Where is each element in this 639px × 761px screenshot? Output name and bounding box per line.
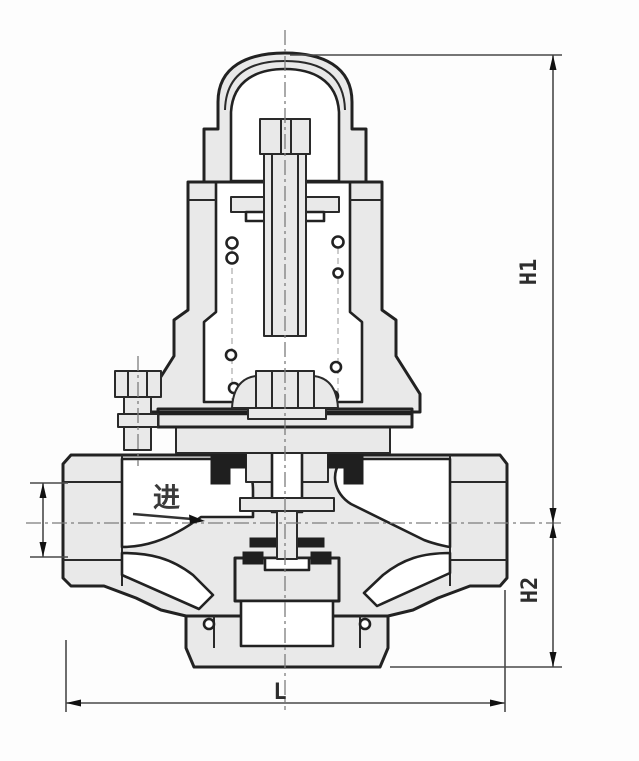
h1-arrow-top [550, 55, 557, 70]
stem-lower [277, 511, 297, 559]
cap-bolt-hole-left [204, 619, 214, 629]
l-label: L [273, 680, 286, 705]
valve-cross-section-drawing: H1 H2 L 进 [0, 0, 639, 761]
bore-arrow-top [40, 483, 47, 498]
plug-cavity [241, 601, 333, 646]
nut-base-plate [248, 408, 326, 419]
body-collar [176, 427, 390, 453]
bore-arrow-bottom [40, 542, 47, 557]
drawing-canvas: H1 H2 L 进 [0, 0, 639, 761]
seat-seal-right [311, 552, 331, 564]
h1-label: H1 [517, 259, 542, 286]
h2-arrow-bottom [550, 652, 557, 667]
stem-flange [240, 498, 334, 511]
l-arrow-left [66, 700, 81, 707]
h2-arrow-top [550, 523, 557, 538]
seat-seal-left [243, 552, 263, 564]
inlet-label: 进 [153, 483, 181, 514]
l-arrow-right [490, 700, 505, 707]
cap-bolt-hole-right [360, 619, 370, 629]
h1-arrow-bottom [550, 508, 557, 523]
h2-label: H2 [518, 577, 543, 604]
